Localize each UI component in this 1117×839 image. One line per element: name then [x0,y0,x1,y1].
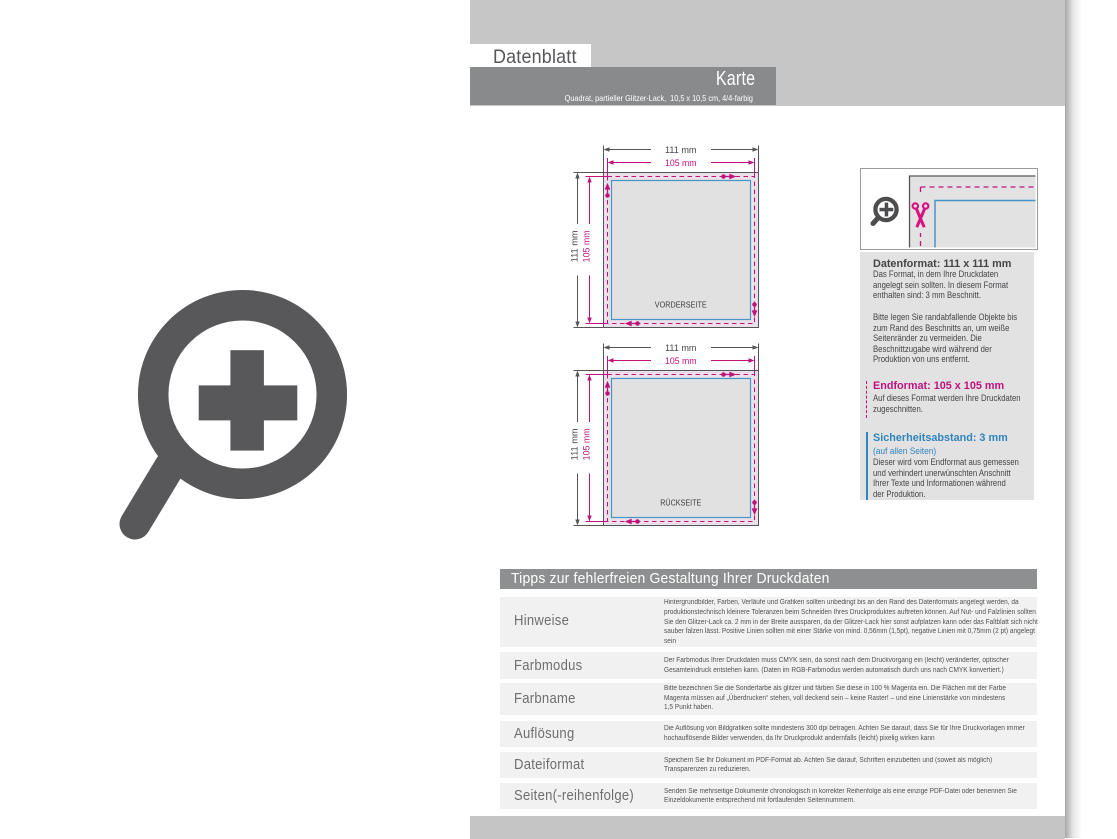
svg-text:VORDERSEITE: VORDERSEITE [655,301,707,310]
svg-text:RÜCKSEITE: RÜCKSEITE [660,499,701,508]
